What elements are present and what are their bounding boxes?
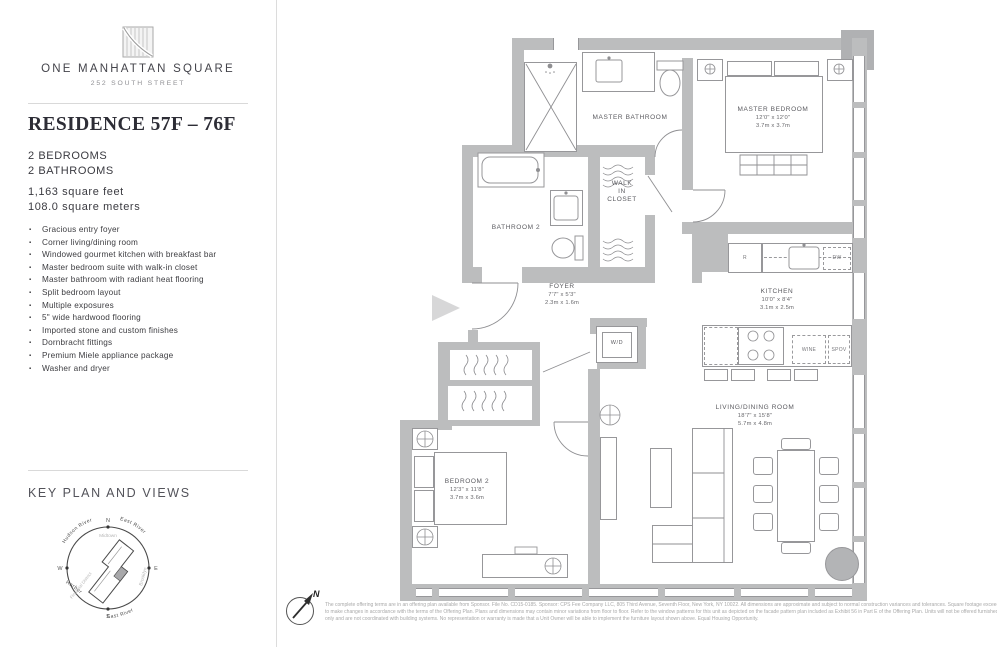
compass-e-label: E [154,566,158,572]
floor-plan: MASTER BATHROOM MASTER BEDROOM 12'0" x 1… [300,30,880,605]
divider-keyplan [28,470,248,471]
feature-item: Gracious entry foyer [28,224,216,237]
floorplan-sheet: ONE MANHATTAN SQUARE 252 SOUTH STREET RE… [0,0,1000,647]
feature-item: Premium Miele appliance package [28,350,216,363]
disclaimer-line: only and are not coordinated with buildi… [325,616,997,623]
feature-item: Imported stone and custom finishes [28,325,216,338]
area-sqft: 1,163 square feet [28,186,124,198]
disclaimer: The complete offering terms are in an of… [325,602,997,622]
area-sqm: 108.0 square meters [28,201,140,213]
disclaimer-line: The complete offering terms are in an of… [325,602,997,609]
building-footprint [82,540,139,603]
brand-name: ONE MANHATTAN SQUARE [0,63,276,75]
feature-item: Washer and dryer [28,363,216,376]
room-label-living-dining: LIVING/DINING ROOM 18'7" x 15'8" 5.7m x … [675,404,835,428]
divider-top [28,103,248,104]
appliance-label-wine: WINE [792,347,826,353]
area-brooklyn: Brooklyn [138,567,149,587]
oms-logo-icon [120,26,156,60]
feature-item: Master bedroom suite with walk-in closet [28,262,216,275]
room-label-master-bedroom: MASTER BEDROOM 12'0" x 12'0" 3.7m x 3.7m [713,106,833,130]
appliance-label-dishwasher: DW [823,255,851,261]
feature-item: Corner living/dining room [28,237,216,250]
feature-list: Gracious entry foyer Corner living/dinin… [28,224,216,375]
room-label-foyer: FOYER 7'7" x 5'3" 2.3m x 1.6m [517,283,607,307]
keyplan-title: KEY PLAN AND VIEWS [28,486,191,500]
room-label-wd: W/D [597,340,637,346]
feature-item: 5" wide hardwood flooring [28,312,216,325]
north-label: N [313,589,320,599]
feature-item: Master bathroom with radiant heat floori… [28,274,216,287]
keyplan-compass-diagram: N E S W Hudson River East River East Riv… [30,504,186,632]
bathrooms-label: 2 BATHROOMS [28,165,114,177]
view-east-river-ne: East River [119,516,147,535]
appliance-label-refrigerator: R [728,255,762,261]
north-arrow-icon: N [282,584,326,630]
feature-item: Dornbracht fittings [28,337,216,350]
room-label-master-bathroom: MASTER BATHROOM [570,114,690,121]
feature-item: Windowed gourmet kitchen with breakfast … [28,249,216,262]
residence-title: RESIDENCE 57F – 76F [28,114,236,136]
feature-item: Multiple exposures [28,300,216,313]
feature-item: Split bedroom layout [28,287,216,300]
compass-w-label: W [57,566,63,572]
appliance-label-speed-oven: SPOV [827,347,851,353]
room-label-bedroom2: BEDROOM 2 12'3" x 11'8" 3.7m x 3.6m [417,478,517,502]
bedrooms-label: 2 BEDROOMS [28,150,107,162]
svg-text:East River: East River [119,516,147,535]
entry-arrow-icon [432,295,460,321]
disclaimer-line: to make changes in accordance with the t… [325,609,997,616]
panel-divider [276,0,277,647]
room-label-kitchen: KITCHEN 10'0" x 8'4" 3.1m x 2.5m [727,288,827,312]
area-midtown: Midtown [99,533,117,539]
brand-address: 252 SOUTH STREET [0,80,276,87]
room-label-wic: WALK IN CLOSET [597,180,647,204]
room-label-bathroom2: BATHROOM 2 [466,224,566,231]
compass-n-label: N [106,518,110,524]
